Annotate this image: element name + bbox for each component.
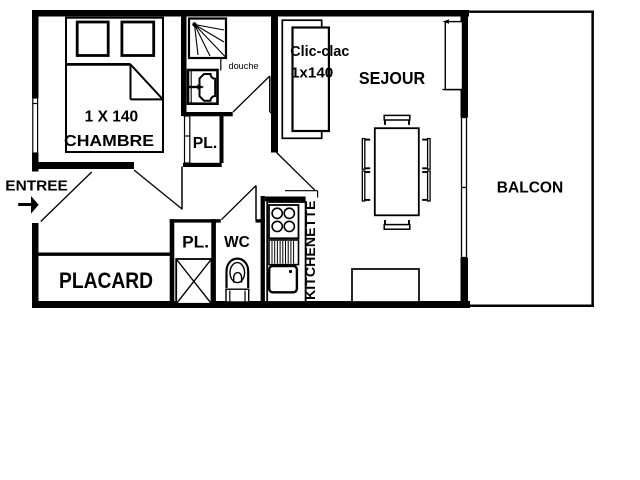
svg-text:1 X 140: 1 X 140: [85, 109, 139, 126]
svg-text:Clic-clac: Clic-clac: [290, 44, 349, 60]
svg-text:SEJOUR: SEJOUR: [359, 68, 426, 88]
svg-text:WC: WC: [224, 234, 250, 251]
svg-text:PLACARD: PLACARD: [59, 268, 153, 293]
svg-text:KITCHENETTE: KITCHENETTE: [302, 201, 318, 300]
svg-text:BALCON: BALCON: [497, 179, 563, 196]
svg-text:CHAMBRE: CHAMBRE: [64, 133, 154, 150]
svg-text:PL.: PL.: [182, 233, 209, 252]
svg-text:ENTREE: ENTREE: [5, 179, 68, 195]
svg-text:douche: douche: [229, 61, 259, 72]
svg-text:PL.: PL.: [193, 135, 218, 152]
svg-text:1x140: 1x140: [291, 66, 333, 82]
